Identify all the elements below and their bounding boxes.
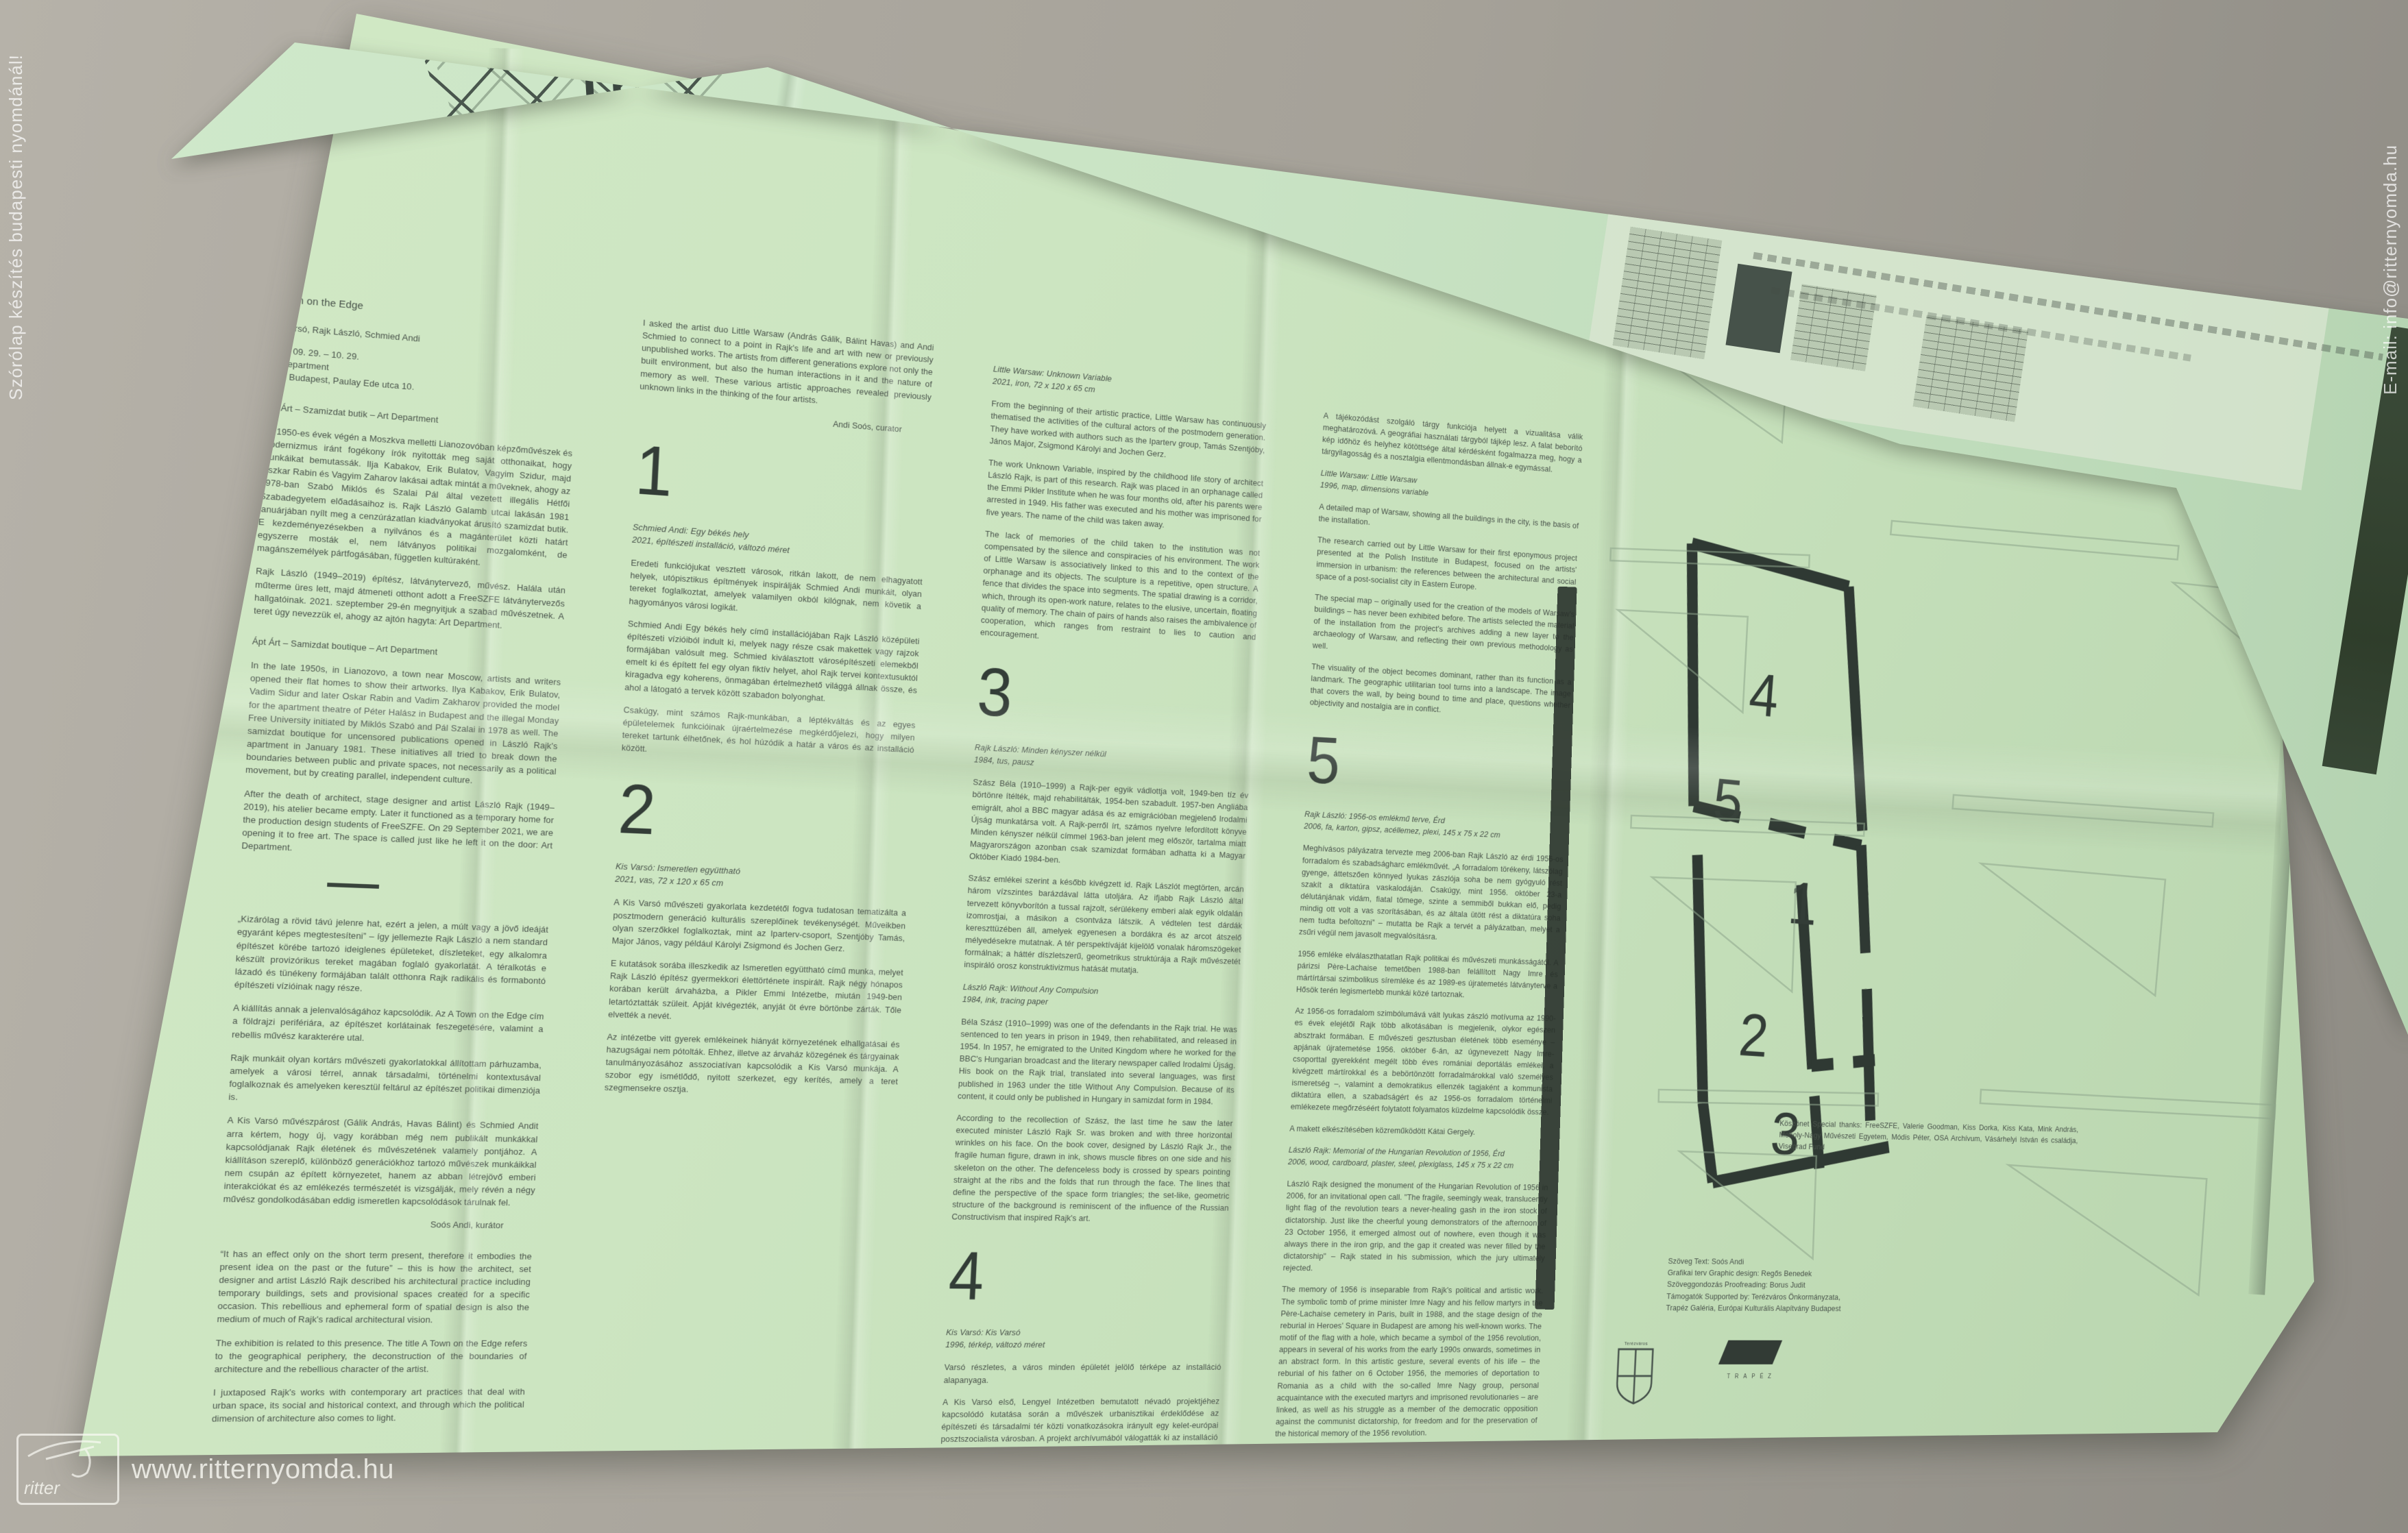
quill-icon [19,1436,117,1484]
poster-flap-wrap [165,27,2408,1096]
text-caption: Kis Varsó: Kis Varsó1996, térkép, változ… [945,1326,1223,1351]
brick-elevation-panel-1 [1613,227,1723,359]
text-para: Varsó részletes, a város minden épületét… [943,1361,1221,1386]
text-para: A makett elkészítésében közreműködött Ká… [1289,1122,1550,1139]
work-title: Kis Varsó: Kis Varsó [946,1326,1223,1339]
printer-url: www.ritternyomda.hu [132,1454,394,1485]
printer-logo: ritter [16,1434,119,1505]
watermark-left-edge: Szórólap készítés budapesti nyomdánál! [5,16,27,400]
text-para: The exhibition is related to this presen… [214,1336,527,1376]
text-para: The model was created in collaboration w… [1274,1447,1535,1462]
text-para: The memory of 1956 is inseparable from R… [1275,1283,1544,1439]
poster-flap-reverse-side [165,27,2408,1096]
text-para: László Rajk designed the monument of the… [1282,1177,1548,1275]
text-para: A Kis Varsó művészpárost (Gálik András, … [223,1114,539,1210]
text-para: A Kis Varsó első, Lengyel Intézetben bem… [940,1395,1219,1458]
curator-signature-hu: Soós Andi, kurátor [221,1216,533,1232]
text-para: “It has an effect only on the short term… [217,1247,532,1327]
text-para: According to the recollection of Szász, … [951,1112,1233,1226]
work-meta: 1996, térkép, változó méret [945,1338,1222,1351]
text-caption: László Rajk: Memorial of the Hungarian R… [1288,1144,1550,1172]
printer-watermark: ritter www.ritternyomda.hu [16,1434,394,1505]
section-number-4: 4 [947,1245,1227,1311]
printer-name: ritter [24,1477,60,1499]
watermark-right-edge: E-mail: info@ritternyomda.hu [2380,11,2401,395]
